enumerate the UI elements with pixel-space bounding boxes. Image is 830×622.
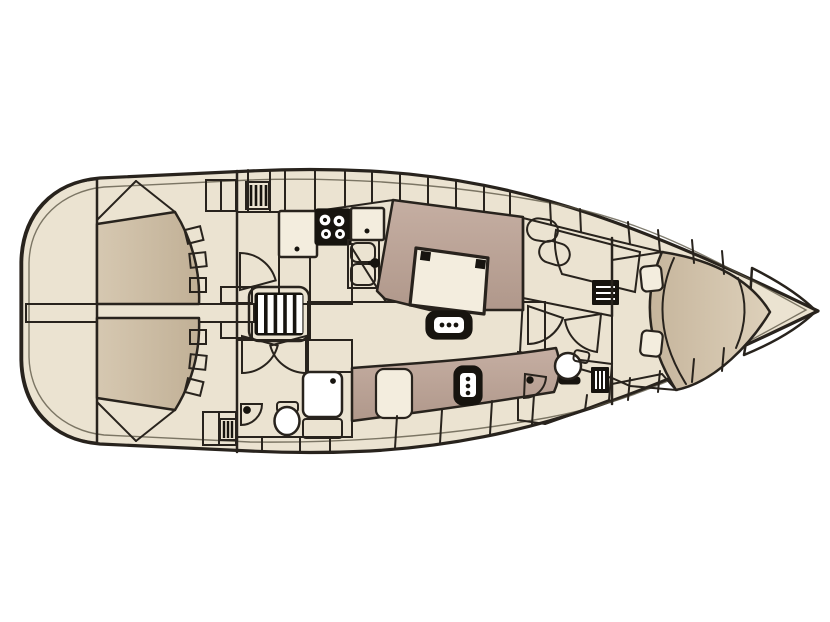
nav-seat <box>376 369 412 418</box>
berth-step-starboard <box>640 330 663 357</box>
cockpit-bench-port <box>97 212 199 304</box>
cockpit-bench-starboard <box>97 318 199 410</box>
forward-head-grate <box>592 368 608 392</box>
galley-counter-right <box>351 208 384 240</box>
mast-post <box>455 367 481 404</box>
yacht-floor-plan <box>0 0 830 622</box>
counter-latch <box>295 247 299 251</box>
folding-stool <box>427 312 471 338</box>
shelf-unit <box>593 281 618 304</box>
counter-latch-2 <box>365 229 369 233</box>
dinette-table <box>410 248 488 314</box>
berth-step-port <box>640 265 663 292</box>
shower-drain <box>331 379 336 384</box>
companionway-steps <box>249 287 309 341</box>
stove-4-burner <box>316 210 350 244</box>
